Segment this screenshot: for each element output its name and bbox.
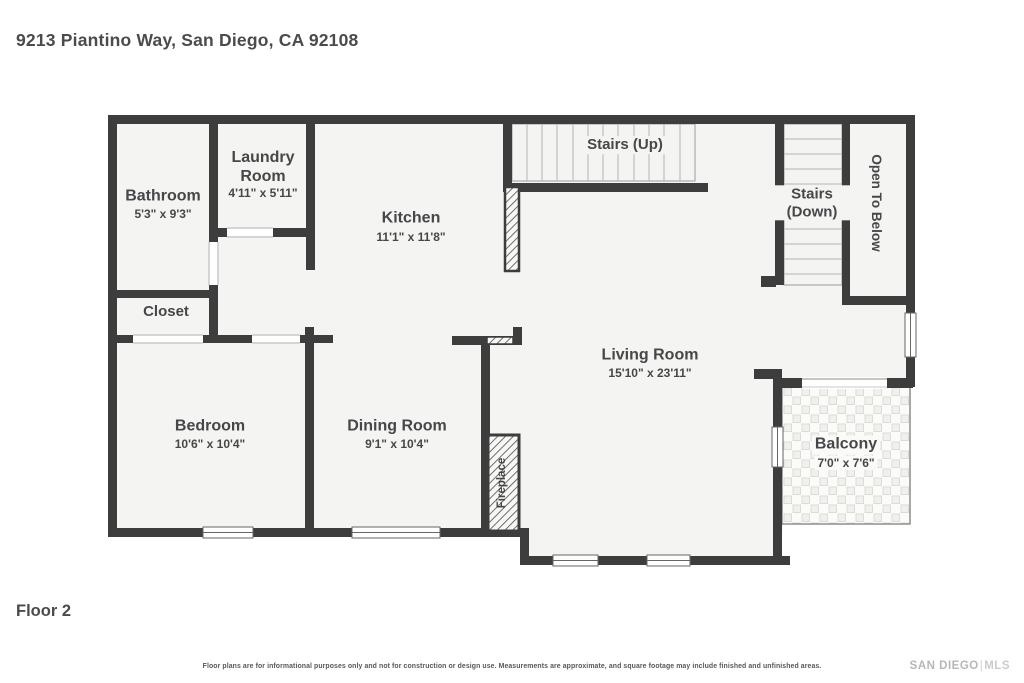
room-label-closet: Closet [143,303,189,321]
label-fireplace: Fireplace [496,458,510,509]
mls-logo: SAN DIEGO|MLS [910,660,1010,672]
label-stairs-down: Stairs (Down) [773,185,851,220]
kitchen-half-wall [505,187,519,271]
room-dims-balcony: 7'0" x 7'6" [814,456,877,470]
room-dims-bathroom: 5'3" x 9'3" [134,207,191,221]
label-stairs-up: Stairs (Up) [584,136,666,154]
logo-suffix: MLS [984,660,1010,672]
floorplan-drawing [0,0,1024,683]
room-dims-laundry: 4'11" x 5'11" [228,186,297,200]
pony-wall-hatch [487,337,513,344]
logo-brand: SAN DIEGO [910,660,979,672]
room-label-bathroom: Bathroom [125,188,201,207]
floor-label: Floor 2 [16,602,71,621]
room-label-dining: Dining Room [347,418,447,437]
room-label-laundry: Laundry Room [215,149,311,187]
room-dims-bedroom: 10'6" x 10'4" [175,437,245,451]
room-dims-dining: 9'1" x 10'4" [365,437,429,451]
floorplan-page: 9213 Piantino Way, San Diego, CA 92108 [0,0,1024,683]
room-label-balcony: Balcony [812,436,880,455]
room-label-kitchen: Kitchen [382,210,441,229]
room-dims-kitchen: 11'1" x 11'8" [376,230,445,244]
room-label-living: Living Room [602,347,699,366]
room-label-bedroom: Bedroom [175,418,245,437]
room-dims-living: 15'10" x 23'11" [608,366,691,380]
label-open-to-below: Open To Below [868,154,884,251]
disclaimer-text: Floor plans are for informational purpos… [0,663,1024,670]
